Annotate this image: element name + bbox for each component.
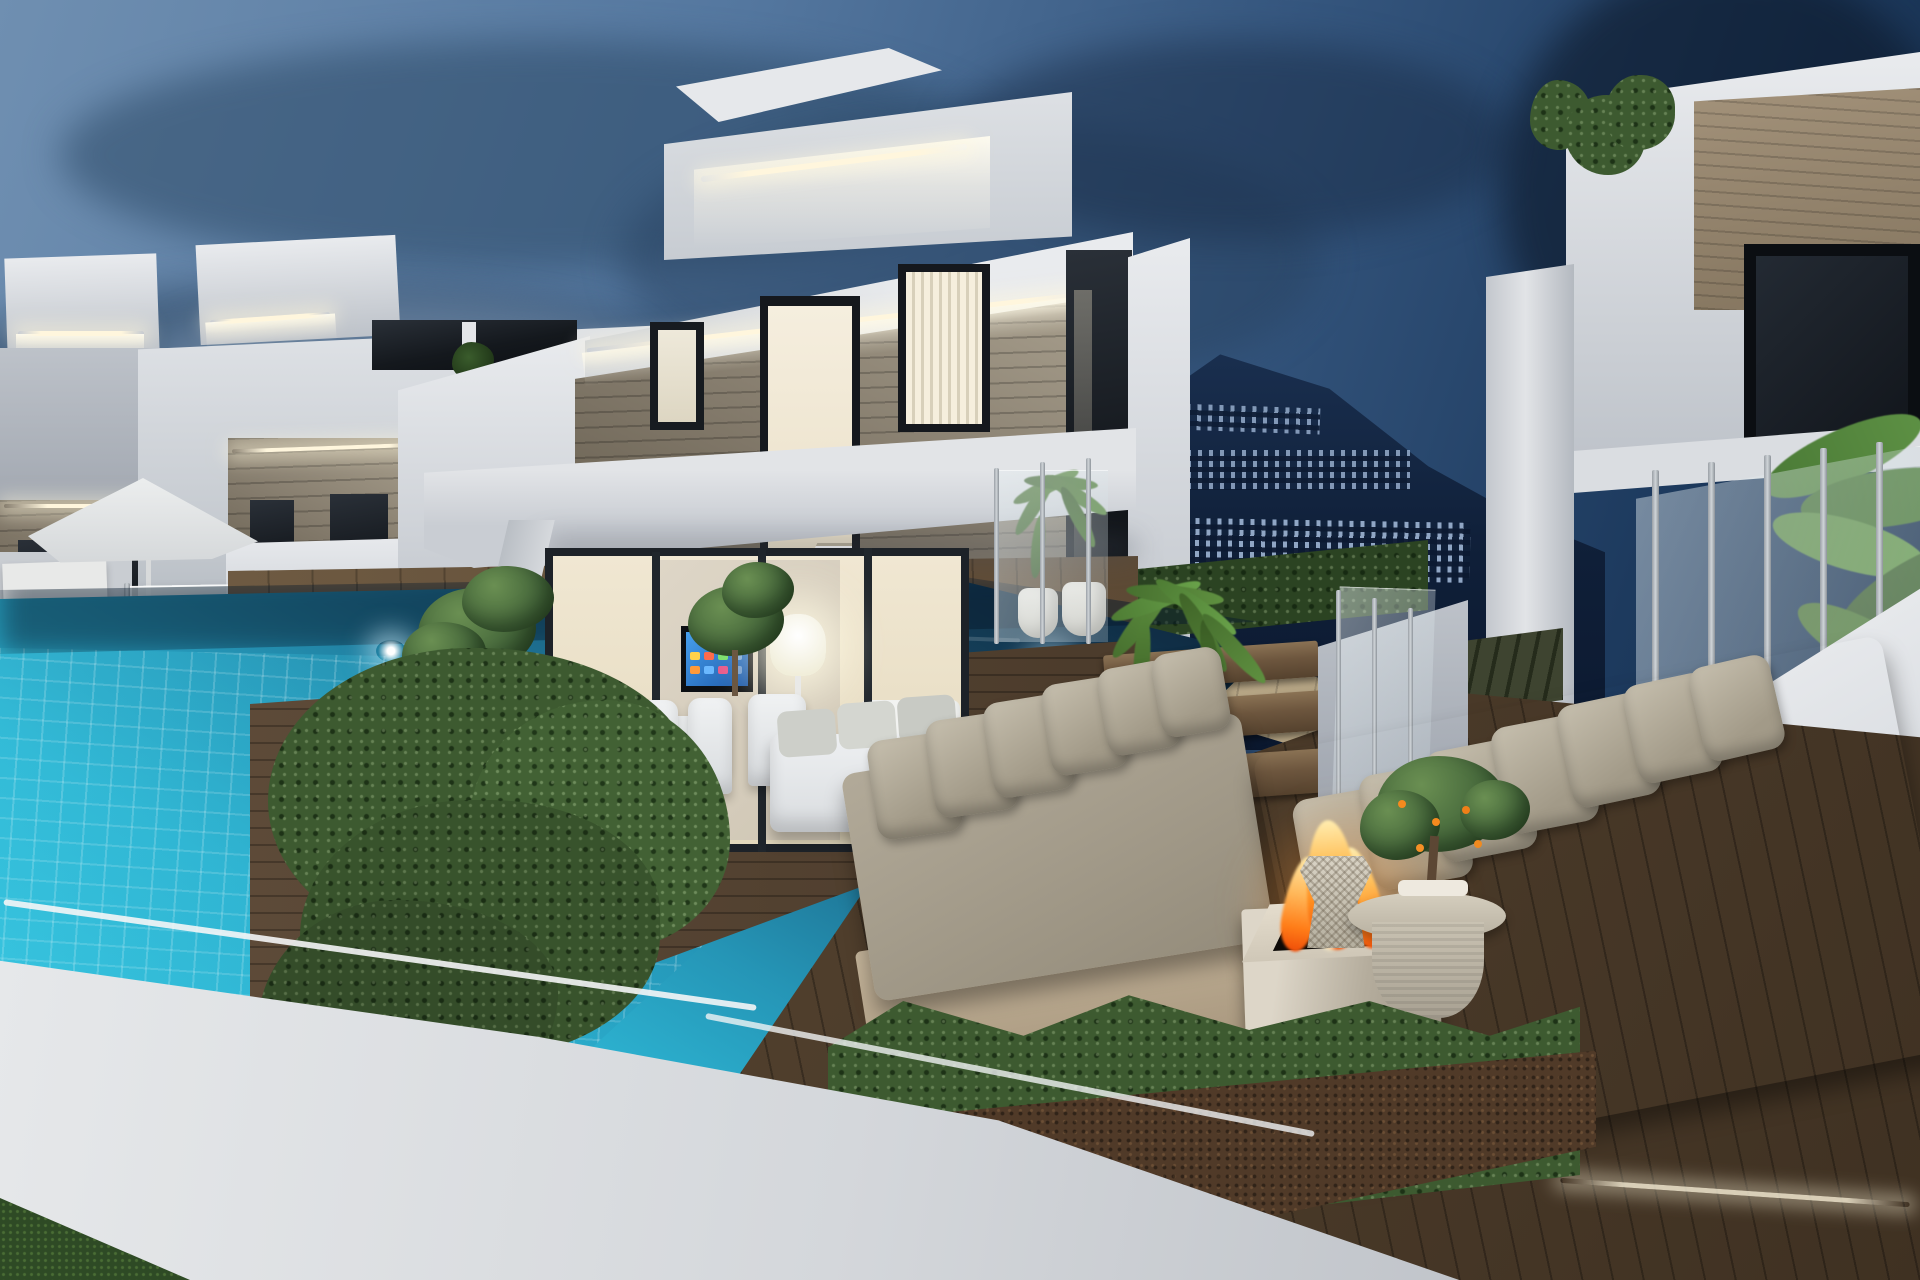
villa-dusk-render	[0, 0, 1920, 1280]
table-tray	[1398, 880, 1468, 896]
parapet-bush	[1605, 75, 1675, 150]
sofa-pillow	[1149, 645, 1233, 740]
warm-window-louvers	[906, 272, 982, 424]
railing-post	[1086, 458, 1091, 644]
right-villa-window-pane	[1756, 256, 1908, 436]
tv-app-tiles	[690, 652, 700, 660]
olive-tree-trunk	[732, 650, 738, 696]
railing-post	[1040, 462, 1045, 644]
daybed-cushion	[776, 708, 837, 758]
terrace-railing-glass	[996, 470, 1108, 642]
citrus-fruit	[1398, 800, 1406, 808]
railing-post	[994, 468, 999, 644]
coffee-table-base	[1372, 922, 1484, 1018]
upper-window-lit	[658, 330, 696, 422]
left-far-villa-led-strip	[18, 331, 144, 336]
